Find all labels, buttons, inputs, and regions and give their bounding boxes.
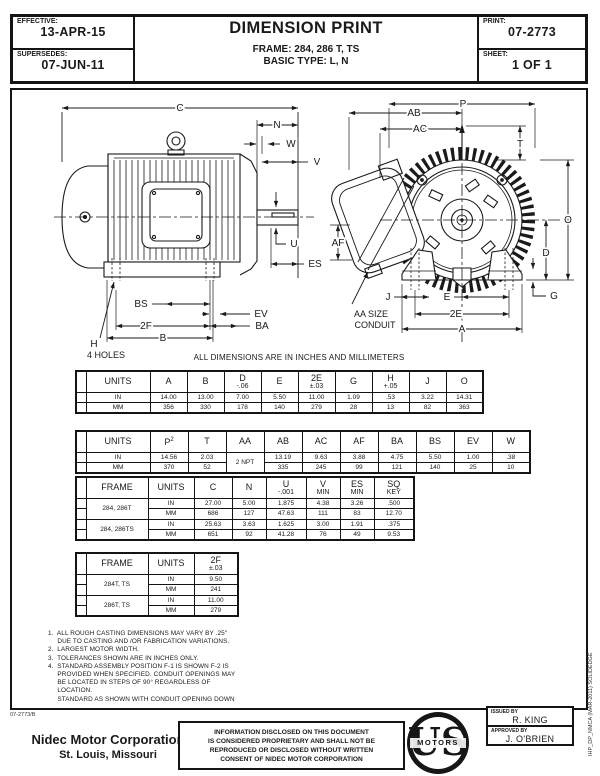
column-header: BS bbox=[416, 431, 454, 452]
column-header: 2E±.03 bbox=[298, 371, 335, 392]
dim-label-ev: EV bbox=[254, 309, 268, 320]
us-motors-logo: US MOTORS bbox=[407, 712, 469, 774]
table-cell: IN bbox=[148, 574, 194, 585]
table-cell: 279 bbox=[298, 403, 335, 414]
table-cell: MM bbox=[86, 463, 150, 474]
table-row: 286T, TSIN11.00 bbox=[76, 595, 238, 606]
supersedes-label: SUPERSEDES: bbox=[17, 51, 129, 58]
document-title: DIMENSION PRINT bbox=[135, 19, 477, 38]
column-header: AC bbox=[302, 431, 340, 452]
dim-label-2f: 2F bbox=[140, 321, 152, 332]
column-header bbox=[76, 431, 86, 452]
column-header bbox=[76, 477, 86, 498]
table-cell: 76 bbox=[306, 530, 340, 541]
dim-label-b: B bbox=[160, 333, 167, 344]
column-header: FRAME bbox=[86, 477, 148, 498]
document-code: 07-2773/B bbox=[10, 712, 35, 718]
print-number: 07-2773 bbox=[483, 25, 581, 39]
table-cell: 284T, TS bbox=[86, 574, 148, 595]
column-header: SQKEY bbox=[374, 477, 414, 498]
column-header: T bbox=[188, 431, 226, 452]
table-cell: 82 bbox=[409, 403, 446, 414]
table-cell: 92 bbox=[232, 530, 266, 541]
table-cell: 2 NPT bbox=[226, 452, 264, 473]
column-header: BA bbox=[378, 431, 416, 452]
dimension-table-frame-host: FRAMEUNITSCNU-.001VMINESMINSQKEY284, 286… bbox=[75, 476, 415, 541]
table-cell: MM bbox=[148, 606, 194, 617]
supersedes-date: 07-JUN-11 bbox=[17, 58, 129, 72]
sheet-number: 1 OF 1 bbox=[483, 58, 581, 72]
effective-cell: EFFECTIVE: 13-APR-15 bbox=[13, 17, 133, 48]
column-header: W bbox=[492, 431, 530, 452]
drawing-area: C N W V U ES BS EV 2F BA B H 4 HOLES bbox=[10, 88, 588, 710]
dim-label-bs: BS bbox=[134, 299, 148, 310]
table-cell: 52 bbox=[188, 463, 226, 474]
print-label: PRINT: bbox=[483, 18, 581, 25]
table-cell: 2.03 bbox=[188, 452, 226, 463]
front-view-drawing: P AB AC T O D G AF J E 2E A AA SIZE COND… bbox=[318, 90, 594, 358]
column-header: E bbox=[261, 371, 298, 392]
table-cell: IN bbox=[148, 519, 194, 530]
table-cell: 9.53 bbox=[374, 530, 414, 541]
header-row: UNITSABD-.06E2E±.03GH+.05JO bbox=[76, 371, 483, 392]
table-cell: 99 bbox=[340, 463, 378, 474]
table-cell: 25.63 bbox=[194, 519, 232, 530]
table-cell: 284, 286TS bbox=[86, 519, 148, 540]
table-cell bbox=[76, 452, 86, 463]
column-header: J bbox=[409, 371, 446, 392]
dimension-table-2-host: UNITSP2TAAABACAFBABSEVWIN14.562.032 NPT1… bbox=[75, 430, 531, 474]
table-cell: 140 bbox=[261, 403, 298, 414]
table-cell: 121 bbox=[378, 463, 416, 474]
table-row: 284, 286TSIN25.633.631.6253.001.91.375 bbox=[76, 519, 414, 530]
table-cell: 9.50 bbox=[194, 574, 238, 585]
table-cell: 10 bbox=[492, 463, 530, 474]
effective-label: EFFECTIVE: bbox=[17, 18, 129, 25]
table-cell: 245 bbox=[302, 463, 340, 474]
column-header: UNITS bbox=[86, 431, 150, 452]
dim-label-h: H bbox=[90, 339, 97, 350]
company-name: Nidec Motor Corporation bbox=[28, 732, 188, 747]
table-cell: MM bbox=[148, 585, 194, 596]
table-cell: 3.22 bbox=[409, 392, 446, 403]
table-cell: IN bbox=[148, 498, 194, 509]
table-cell: 28 bbox=[335, 403, 372, 414]
table-cell: 83 bbox=[340, 509, 374, 520]
table-cell: 5.50 bbox=[261, 392, 298, 403]
table-cell: 11.00 bbox=[194, 595, 238, 606]
table-cell: 356 bbox=[150, 403, 187, 414]
table-cell: 5.00 bbox=[232, 498, 266, 509]
disclosure-box: INFORMATION DISCLOSED ON THIS DOCUMENT I… bbox=[178, 721, 405, 770]
column-header: UNITS bbox=[148, 553, 194, 574]
table-cell: 363 bbox=[446, 403, 483, 414]
column-header: A bbox=[150, 371, 187, 392]
column-header: UNITS bbox=[86, 371, 150, 392]
table-cell bbox=[76, 463, 86, 474]
table-cell: 111 bbox=[306, 509, 340, 520]
approved-by-name: J. O'BRIEN bbox=[491, 734, 569, 744]
company-block: Nidec Motor Corporation St. Louis, Misso… bbox=[28, 732, 188, 761]
frame-line: FRAME: 284, 286 T, TS bbox=[135, 44, 477, 55]
table-cell: 7.00 bbox=[224, 392, 261, 403]
table-cell: 14.56 bbox=[150, 452, 188, 463]
column-header: N bbox=[232, 477, 266, 498]
table-cell: 279 bbox=[194, 606, 238, 617]
title-block-center: DIMENSION PRINT FRAME: 284, 286 T, TS BA… bbox=[133, 17, 479, 81]
header-row: FRAMEUNITSCNU-.001VMINESMINSQKEY bbox=[76, 477, 414, 498]
dims-table-1: UNITSABD-.06E2E±.03GH+.05JOIN14.0013.007… bbox=[75, 370, 484, 414]
column-header: 2F±.03 bbox=[194, 553, 238, 574]
table-row: IN14.562.032 NPT13.199.633.884.755.501.0… bbox=[76, 452, 530, 463]
effective-date: 13-APR-15 bbox=[17, 25, 129, 39]
column-header: U-.001 bbox=[266, 477, 306, 498]
table-cell: 284, 286T bbox=[86, 498, 148, 519]
table-row: MM356330178140279281382363 bbox=[76, 403, 483, 414]
dim-label-j: J bbox=[386, 292, 391, 303]
dim-label-ab: AB bbox=[407, 108, 421, 119]
signature-boxes: ISSUED BY R. KING APPROVED BY J. O'BRIEN bbox=[486, 706, 574, 746]
table-cell: 13.19 bbox=[264, 452, 302, 463]
dim-label-w: W bbox=[286, 139, 296, 150]
table-cell bbox=[76, 574, 86, 585]
print-cell: PRINT: 07-2773 bbox=[479, 17, 585, 48]
issued-by-box: ISSUED BY R. KING bbox=[486, 706, 574, 727]
dim-label-ba: BA bbox=[255, 321, 269, 332]
table-cell: 25 bbox=[454, 463, 492, 474]
table-cell: 49 bbox=[340, 530, 374, 541]
dim-label-p: P bbox=[460, 99, 467, 110]
dimension-table-1-host: UNITSABD-.06E2E±.03GH+.05JOIN14.0013.007… bbox=[75, 370, 484, 414]
side-view-wrap: C N W V U ES BS EV 2F BA B H 4 HOLES bbox=[30, 92, 332, 367]
column-header: B bbox=[187, 371, 224, 392]
basic-type-line: BASIC TYPE: L, N bbox=[135, 56, 477, 67]
sheet-cell: SHEET: 1 OF 1 bbox=[479, 48, 585, 81]
table-cell: 13 bbox=[372, 403, 409, 414]
column-header: O bbox=[446, 371, 483, 392]
table-cell: .53 bbox=[372, 392, 409, 403]
table-cell: 140 bbox=[416, 463, 454, 474]
table-row: 284T, TSIN9.50 bbox=[76, 574, 238, 585]
table-cell: 1.625 bbox=[266, 519, 306, 530]
table-cell bbox=[76, 392, 86, 403]
table-cell: .375 bbox=[374, 519, 414, 530]
table-cell bbox=[76, 519, 86, 530]
notes-list: 1. ALL ROUGH CASTING DIMENSIONS MAY VARY… bbox=[48, 630, 235, 704]
table-cell: MM bbox=[86, 403, 150, 414]
side-view-drawing: C N W V U ES BS EV 2F BA B H 4 HOLES bbox=[30, 92, 332, 362]
dim-label-o: O bbox=[564, 215, 572, 226]
table-cell: 1.875 bbox=[266, 498, 306, 509]
table-cell bbox=[76, 498, 86, 509]
table-cell: 1.09 bbox=[335, 392, 372, 403]
dimension-table-2f-host: FRAMEUNITS2F±.03284T, TSIN9.50MM241286T,… bbox=[75, 552, 239, 617]
table-cell: 3.63 bbox=[232, 519, 266, 530]
column-header: C bbox=[194, 477, 232, 498]
table-cell: 41.28 bbox=[266, 530, 306, 541]
table-cell bbox=[76, 595, 86, 606]
table-cell: 1.00 bbox=[454, 452, 492, 463]
table-cell: MM bbox=[148, 530, 194, 541]
table-cell: 3.26 bbox=[340, 498, 374, 509]
dim-label-t: T bbox=[517, 139, 523, 150]
dim-label-a: A bbox=[459, 324, 466, 335]
table-cell: 651 bbox=[194, 530, 232, 541]
dim-label-c: C bbox=[176, 103, 183, 114]
side-motor-outline bbox=[54, 132, 314, 281]
table-cell: 4.38 bbox=[306, 498, 340, 509]
dim-label-af: AF bbox=[332, 238, 345, 249]
table-cell: 11.00 bbox=[298, 392, 335, 403]
column-header: H+.05 bbox=[372, 371, 409, 392]
column-header: G bbox=[335, 371, 372, 392]
table-cell: 241 bbox=[194, 585, 238, 596]
table-row: 284, 286TIN27.005.001.8754.383.26.500 bbox=[76, 498, 414, 509]
dims-table-2f: FRAMEUNITS2F±.03284T, TSIN9.50MM241286T,… bbox=[75, 552, 239, 617]
column-header: AA bbox=[226, 431, 264, 452]
approved-by-box: APPROVED BY J. O'BRIEN bbox=[486, 725, 574, 746]
table-cell: .38 bbox=[492, 452, 530, 463]
table-cell bbox=[76, 585, 86, 596]
column-header: AF bbox=[340, 431, 378, 452]
logo-motors-text: MOTORS bbox=[410, 738, 466, 748]
table-cell: 9.63 bbox=[302, 452, 340, 463]
table-cell: 12.70 bbox=[374, 509, 414, 520]
table-cell: 5.50 bbox=[416, 452, 454, 463]
table-cell: 27.00 bbox=[194, 498, 232, 509]
table-cell: 370 bbox=[150, 463, 188, 474]
column-header: EV bbox=[454, 431, 492, 452]
table-cell: IN bbox=[148, 595, 194, 606]
table-cell: 178 bbox=[224, 403, 261, 414]
table-row: IN14.0013.007.005.5011.001.09.533.2214.3… bbox=[76, 392, 483, 403]
column-header bbox=[76, 371, 86, 392]
column-header: D-.06 bbox=[224, 371, 261, 392]
sheet-label: SHEET: bbox=[483, 51, 581, 58]
dims-table-2: UNITSP2TAAABACAFBABSEVWIN14.562.032 NPT1… bbox=[75, 430, 531, 474]
table-cell bbox=[76, 606, 86, 617]
table-cell: 686 bbox=[194, 509, 232, 520]
table-cell: IN bbox=[86, 392, 150, 403]
table-cell: 14.31 bbox=[446, 392, 483, 403]
dim-label-2e: 2E bbox=[450, 309, 463, 320]
side-margin-code: IHP_DP_NMCA (MAR-2011) SOLIDEDGE bbox=[588, 626, 594, 756]
column-header: FRAME bbox=[86, 553, 148, 574]
dims-table-frame: FRAMEUNITSCNU-.001VMINESMINSQKEY284, 286… bbox=[75, 476, 415, 541]
supersedes-cell: SUPERSEDES: 07-JUN-11 bbox=[13, 48, 133, 81]
conduit-note-line2: CONDUIT bbox=[355, 320, 396, 330]
column-header: UNITS bbox=[148, 477, 194, 498]
company-location: St. Louis, Missouri bbox=[28, 749, 188, 761]
table-cell: MM bbox=[148, 509, 194, 520]
table-row: MM37052335245991211402510 bbox=[76, 463, 530, 474]
table-cell: 47.63 bbox=[266, 509, 306, 520]
dim-label-ac: AC bbox=[413, 124, 427, 135]
table-cell: 13.00 bbox=[187, 392, 224, 403]
title-block-right: PRINT: 07-2773 SHEET: 1 OF 1 bbox=[479, 17, 585, 81]
table-cell: IN bbox=[86, 452, 150, 463]
column-header: AB bbox=[264, 431, 302, 452]
front-view-wrap: P AB AC T O D G AF J E 2E A AA SIZE COND… bbox=[318, 90, 594, 363]
table-cell: 330 bbox=[187, 403, 224, 414]
header-row: FRAMEUNITS2F±.03 bbox=[76, 553, 238, 574]
conduit-note-line1: AA SIZE bbox=[354, 309, 388, 319]
units-note: ALL DIMENSIONS ARE IN INCHES AND MILLIME… bbox=[12, 353, 586, 362]
table-cell: 335 bbox=[264, 463, 302, 474]
title-block: EFFECTIVE: 13-APR-15 SUPERSEDES: 07-JUN-… bbox=[10, 14, 588, 84]
table-cell: 1.91 bbox=[340, 519, 374, 530]
table-cell: .500 bbox=[374, 498, 414, 509]
table-cell: 286T, TS bbox=[86, 595, 148, 616]
column-header: P2 bbox=[150, 431, 188, 452]
column-header: ESMIN bbox=[340, 477, 374, 498]
dim-label-e: E bbox=[444, 292, 451, 303]
table-cell bbox=[76, 530, 86, 541]
dim-label-u: U bbox=[290, 239, 297, 250]
column-header: VMIN bbox=[306, 477, 340, 498]
table-cell: 3.00 bbox=[306, 519, 340, 530]
header-row: UNITSP2TAAABACAFBABSEVW bbox=[76, 431, 530, 452]
table-cell: 3.88 bbox=[340, 452, 378, 463]
dim-label-n: N bbox=[273, 120, 280, 131]
table-cell: 14.00 bbox=[150, 392, 187, 403]
column-header bbox=[76, 553, 86, 574]
issued-by-name: R. KING bbox=[491, 715, 569, 725]
table-cell: 127 bbox=[232, 509, 266, 520]
table-cell bbox=[76, 403, 86, 414]
dim-label-g: G bbox=[550, 291, 558, 302]
dim-label-d: D bbox=[542, 248, 549, 259]
title-block-left: EFFECTIVE: 13-APR-15 SUPERSEDES: 07-JUN-… bbox=[13, 17, 133, 81]
table-cell: 4.75 bbox=[378, 452, 416, 463]
table-cell bbox=[76, 509, 86, 520]
